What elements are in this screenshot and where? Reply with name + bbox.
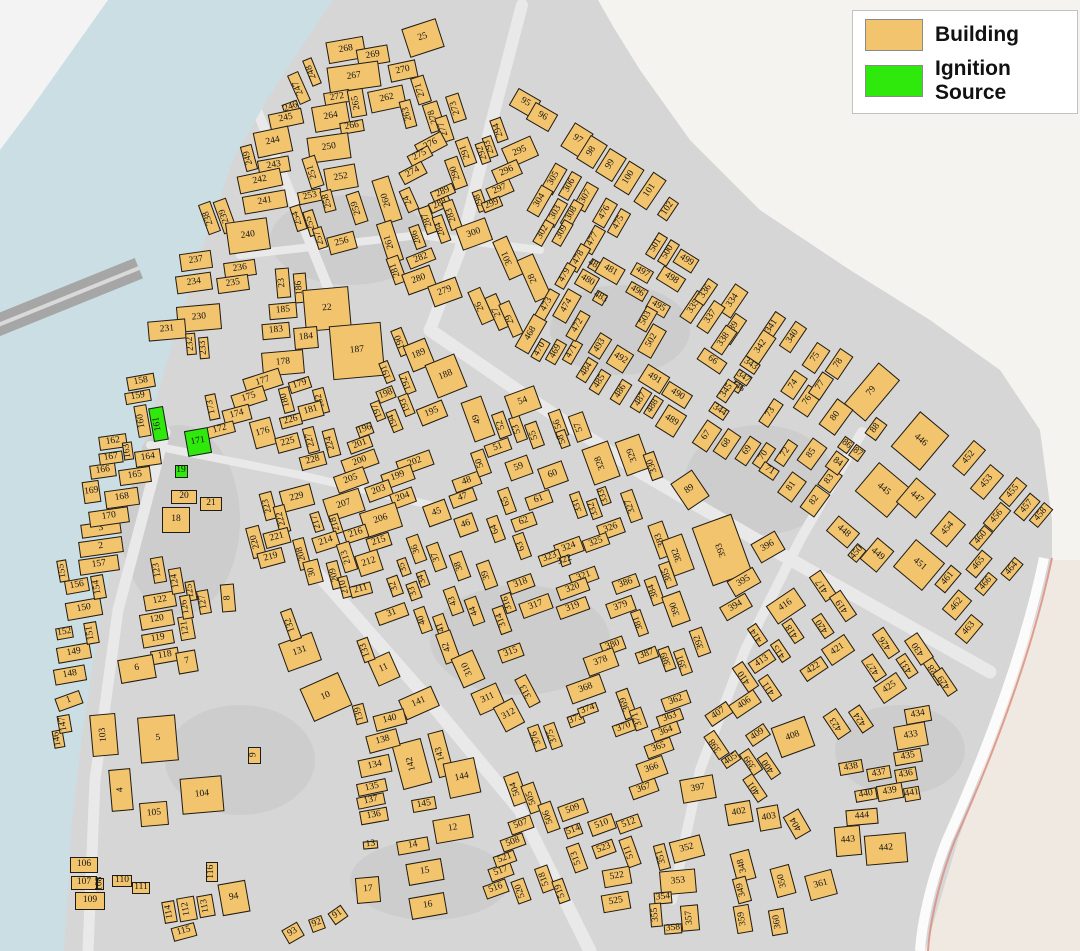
building-120: 120 [139,609,175,631]
building-195: 195 [416,399,449,426]
building-493: 493 [588,332,613,360]
building-102: 102 [657,197,679,222]
building-73: 73 [758,398,784,428]
building-91: 91 [327,905,348,926]
building-509: 509 [557,798,589,823]
legend-label-building: Building [935,23,1019,47]
building-260: 260 [371,175,402,224]
building-64: 64 [486,515,506,544]
building-144: 144 [443,757,482,799]
building-331: 331 [568,491,587,519]
building-436: 436 [894,766,918,784]
building-387: 387 [635,646,660,665]
building-227: 227 [302,426,320,454]
building-37: 37 [425,542,447,573]
building-442: 442 [864,832,908,866]
building-499: 499 [672,248,699,273]
building-17: 17 [355,876,381,904]
building-63: 63 [512,532,532,561]
building-274: 274 [398,161,428,186]
building-123: 123 [149,556,166,584]
building-374: 374 [577,702,599,718]
building-256: 256 [326,231,358,256]
building-72: 72 [774,439,798,467]
building-359: 359 [733,904,754,934]
building-61: 61 [524,489,553,511]
building-426: 426 [872,627,900,660]
building-437: 437 [866,765,892,782]
building-92: 92 [308,915,326,933]
building-164: 164 [134,448,162,467]
building-217: 217 [309,511,325,533]
building-525: 525 [601,891,632,914]
building-139: 139 [352,703,369,725]
building-171: 171 [184,427,212,457]
building-36: 36 [405,534,427,565]
building-113: 113 [196,894,216,918]
building-85: 85 [796,437,827,470]
building-158: 158 [126,373,156,392]
building-334: 334 [717,283,748,318]
building-351: 351 [653,843,671,871]
building-263: 263 [399,99,418,129]
building-448: 448 [826,515,860,548]
building-81: 81 [777,471,807,503]
building-46: 46 [453,512,479,538]
building-464: 464 [1000,557,1023,582]
building-179: 179 [288,376,313,394]
building-368: 368 [566,673,607,704]
building-241: 241 [242,189,288,214]
building-404: 404 [783,808,812,840]
legend-row-ignition: Ignition Source [853,57,1077,105]
building-360: 360 [768,908,788,936]
building-512: 512 [615,813,642,834]
building-60: 60 [537,460,569,490]
building-168: 168 [104,487,140,510]
building-434: 434 [904,705,932,725]
building-402: 402 [724,800,753,826]
building-340: 340 [779,321,807,354]
building-212: 212 [354,549,384,577]
building-20: 20 [171,490,197,504]
building-446: 446 [891,411,950,471]
legend: Building Ignition Source [852,10,1078,114]
building-234: 234 [175,272,213,295]
building-151: 151 [83,621,100,645]
building-132: 132 [280,608,302,642]
building-355: 355 [649,903,663,928]
building-301: 301 [492,236,524,281]
building-344: 344 [708,401,730,421]
building-479: 479 [554,262,577,290]
building-161: 161 [148,406,169,442]
building-522: 522 [602,866,633,889]
building-259: 259 [345,191,368,226]
building-349: 349 [732,876,752,905]
building-445: 445 [855,462,912,518]
building-424: 424 [848,704,874,733]
building-93: 93 [281,922,305,945]
building-386: 386 [611,573,640,595]
building-433: 433 [893,721,929,750]
building-157: 157 [78,554,120,575]
building-152: 152 [55,626,74,641]
building-248: 248 [302,57,322,87]
building-460: 460 [969,525,994,551]
building-518: 518 [534,864,556,893]
building-147: 147 [56,714,72,734]
building-108: 108 [97,878,104,890]
building-313: 313 [514,674,541,708]
building-59: 59 [504,454,533,481]
building-39: 39 [476,559,499,590]
building-89: 89 [670,469,709,510]
building-15: 15 [405,858,444,886]
building-357: 357 [680,904,700,931]
building-163: 163 [122,441,134,460]
building-194: 194 [385,409,403,434]
building-453: 453 [970,464,1004,500]
building-88: 88 [864,417,887,441]
building-414: 414 [746,623,767,647]
building-31: 31 [375,602,410,626]
building-44: 44 [463,596,485,627]
building-94: 94 [217,880,250,916]
building-6: 6 [117,654,157,684]
building-1: 1 [54,690,83,712]
building-444: 444 [845,808,878,827]
building-211: 211 [349,581,373,598]
building-449: 449 [860,537,895,573]
building-516: 516 [482,878,509,899]
building-408: 408 [771,716,816,758]
building-427: 427 [861,653,887,682]
building-443: 443 [834,825,863,857]
building-418: 418 [781,618,804,645]
building-119: 119 [141,629,175,648]
building-396: 396 [750,530,785,563]
building-232: 232 [185,333,197,356]
legend-row-building: Building [853,19,1077,51]
building-419: 419 [829,590,857,623]
building-185: 185 [268,302,297,320]
building-140: 140 [372,708,407,732]
building-167: 167 [98,450,123,465]
building-422: 422 [799,656,828,682]
building-511: 511 [618,836,641,869]
building-483: 483 [592,290,608,306]
building-271: 271 [410,75,432,106]
building-62: 62 [510,511,537,532]
building-114: 114 [161,900,178,924]
building-112: 112 [176,896,198,923]
building-169: 169 [81,480,101,504]
building-105: 105 [139,801,169,827]
building-40: 40 [413,606,433,635]
building-513: 513 [566,842,589,873]
building-43: 43 [442,586,464,617]
building-519: 519 [551,878,570,905]
building-391: 391 [673,648,693,677]
building-440: 440 [854,787,878,803]
building-523: 523 [591,839,616,860]
building-116: 116 [206,862,218,882]
building-9: 9 [248,747,261,764]
building-327: 327 [619,489,642,524]
ignition-swatch [865,65,923,97]
building-454: 454 [930,510,966,547]
building-490: 490 [661,381,693,409]
building-406: 406 [728,689,762,719]
legend-label-ignition: Ignition Source [935,57,1077,105]
building-439: 439 [876,782,904,802]
building-486: 486 [610,379,633,406]
building-367: 367 [628,778,659,801]
map-canvas: 2526826926727027226526226327124824724624… [0,0,1080,951]
building-492: 492 [606,344,635,373]
building-381: 381 [629,609,648,637]
building-489: 489 [655,404,687,438]
building-231: 231 [147,318,187,341]
building-49: 49 [460,396,495,443]
building-514: 514 [563,822,583,839]
building-111: 111 [132,882,150,894]
building-30: 30 [302,558,324,585]
building-463: 463 [955,614,984,644]
building-244: 244 [253,126,294,159]
building-401: 401 [742,773,768,803]
building-133: 133 [356,637,375,664]
building-176: 176 [249,417,277,450]
building-149: 149 [56,642,92,664]
building-14: 14 [396,836,430,855]
building-25: 25 [401,18,445,58]
building-148: 148 [53,664,87,685]
building-322: 322 [559,555,572,568]
building-221: 221 [262,527,291,549]
building-315: 315 [497,642,524,663]
building-115: 115 [171,922,198,942]
building-65: 65 [497,487,517,516]
building-416: 416 [766,587,806,624]
building-392: 392 [689,626,712,657]
building-452: 452 [952,440,986,476]
building-237: 237 [179,250,213,272]
building-520: 520 [510,877,531,904]
building-397: 397 [679,774,717,804]
building-265: 265 [347,88,368,118]
building-110: 110 [112,875,132,887]
building-106: 106 [70,857,98,873]
building-318: 318 [506,573,535,595]
building-328: 328 [581,440,620,485]
building-325: 325 [582,531,611,552]
building-134: 134 [357,754,392,778]
building-361: 361 [804,869,838,901]
building-228: 228 [299,451,328,471]
building-38: 38 [449,550,472,581]
building-7: 7 [175,649,199,674]
building-21: 21 [200,497,222,511]
building-253: 253 [297,187,323,205]
building-506: 506 [537,801,560,834]
building-423: 423 [823,708,852,740]
building-317: 317 [518,593,554,619]
building-421: 421 [821,634,855,666]
building-390: 390 [661,591,691,628]
building-187: 187 [329,322,386,380]
building-145: 145 [411,796,437,813]
building-swatch [865,19,923,51]
building-18: 18 [162,507,190,533]
building-4: 4 [108,768,134,812]
building-330: 330 [643,451,664,481]
building-403: 403 [756,804,782,831]
building-45: 45 [422,499,452,528]
building-197: 197 [370,400,387,422]
building-154: 154 [90,574,107,600]
building-19: 19 [175,465,188,478]
building-156: 156 [64,577,90,595]
building-104: 104 [180,775,225,815]
building-411: 411 [758,674,782,702]
building-252: 252 [323,163,359,192]
building-497: 497 [630,262,654,284]
building-107: 107 [71,876,97,890]
building-352: 352 [669,834,706,864]
building-127: 127 [196,589,212,615]
building-384: 384 [643,576,665,607]
building-413: 413 [748,648,777,673]
building-54: 54 [504,385,542,418]
building-16: 16 [408,892,447,920]
building-258: 258 [319,189,336,213]
building-191: 191 [378,360,396,384]
building-24: 24 [399,187,420,214]
building-8: 8 [220,583,236,612]
building-240: 240 [225,217,271,255]
building-5: 5 [137,714,179,763]
building-350: 350 [769,864,796,898]
building-409: 409 [745,723,771,747]
building-438: 438 [838,759,864,776]
building-420: 420 [811,613,834,640]
building-358: 358 [664,923,683,935]
building-184: 184 [293,326,319,350]
building-233: 233 [198,337,210,360]
building-32: 32 [386,575,404,598]
buildings-layer: 2526826926727027226526226327124824724624… [0,0,1080,951]
building-165: 165 [118,466,152,486]
building-13: 13 [362,840,378,849]
building-193: 193 [397,393,415,418]
building-55: 55 [523,421,544,450]
building-235: 235 [216,274,250,294]
building-441: 441 [903,786,921,803]
building-226: 226 [279,412,303,429]
building-498: 498 [656,265,687,292]
building-51: 51 [484,436,513,457]
building-136: 136 [359,807,389,826]
building-71: 71 [758,461,780,481]
building-389: 389 [657,646,676,673]
building-155: 155 [56,559,70,582]
building-302: 302 [532,219,555,247]
building-282: 282 [406,247,437,270]
building-10: 10 [299,672,352,722]
building-183: 183 [261,322,290,340]
building-173: 173 [204,393,220,421]
building-12: 12 [432,814,474,844]
building-109: 109 [75,892,105,910]
building-57: 57 [568,411,593,443]
building-225: 225 [274,432,301,454]
building-23: 23 [275,267,292,298]
building-170: 170 [88,506,130,527]
building-394: 394 [719,593,753,622]
building-103: 103 [89,713,119,757]
building-510: 510 [587,813,617,837]
building-378: 378 [583,647,620,677]
building-150: 150 [65,597,104,621]
building-214: 214 [311,530,341,553]
building-35: 35 [396,557,412,577]
building-79: 79 [844,362,900,421]
